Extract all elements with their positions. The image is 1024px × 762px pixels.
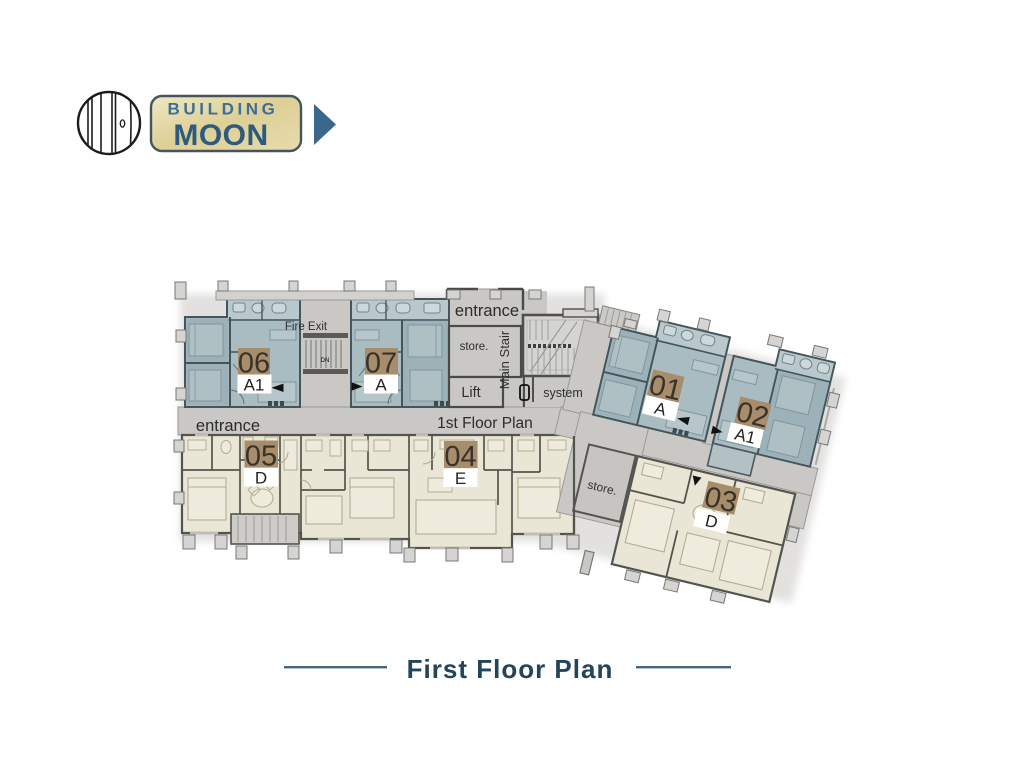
- svg-text:store.: store.: [460, 341, 489, 353]
- svg-text:E: E: [455, 469, 466, 488]
- svg-text:Main Stair: Main Stair: [497, 330, 512, 389]
- svg-text:entrance: entrance: [196, 417, 260, 435]
- svg-text:MOON: MOON: [173, 119, 268, 152]
- svg-text:1st Floor Plan: 1st Floor Plan: [437, 415, 533, 432]
- svg-text:Fire Exit: Fire Exit: [285, 321, 328, 333]
- svg-text:A: A: [375, 376, 387, 395]
- svg-text:A1: A1: [244, 376, 265, 395]
- svg-text:Lift: Lift: [461, 385, 480, 401]
- svg-text:BUILDING: BUILDING: [168, 100, 279, 119]
- svg-text:DN: DN: [321, 358, 330, 364]
- svg-text:system: system: [543, 386, 583, 400]
- svg-text:First Floor Plan: First Floor Plan: [407, 654, 614, 684]
- svg-text:entrance: entrance: [455, 302, 519, 320]
- svg-text:D: D: [255, 469, 267, 488]
